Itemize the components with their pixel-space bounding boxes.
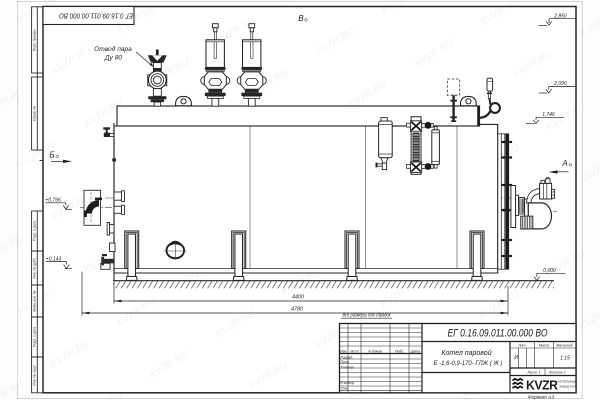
svg-text:4400: 4400 [292,295,304,301]
svg-text:Подп.: Подп. [395,350,404,354]
svg-text:+0,796: +0,796 [45,198,61,204]
svg-text:Инв. № дубл.: Инв. № дубл. [32,257,36,278]
svg-text:Котел паровой: Котел паровой [441,349,491,357]
svg-text:Взам. инв. №: Взам. инв. № [32,290,36,311]
svg-text:ЗАВОД РЭП: ЗАВОД РЭП [559,384,576,388]
svg-text:KVZR: KVZR [526,377,558,392]
svg-text:1:15: 1:15 [560,356,570,362]
svg-text:В: В [298,14,304,23]
svg-text:Изм.: Изм. [340,350,347,354]
svg-text:Отвод пара: Отвод пара [94,45,132,53]
svg-text:Утв.: Утв. [341,387,349,391]
svg-text:Подп. и дата: Подп. и дата [32,221,36,241]
svg-text:Б: Б [49,151,54,160]
svg-text:Подп. и дата: Подп. и дата [32,327,36,347]
svg-text:Все размеры для справок: Все размеры для справок [343,313,391,319]
svg-text:2,090: 2,090 [553,81,567,87]
svg-text:Пров.: Пров. [341,360,350,364]
svg-text:Н.контр.: Н.контр. [341,381,356,385]
svg-text:Е -1,6-0,9-170- ГЛЖ ( Ж ): Е -1,6-0,9-170- ГЛЖ ( Ж ) [434,360,503,367]
svg-text:И: И [514,355,518,361]
svg-text:ЕГ 0.16.09.011.00.000 ВО: ЕГ 0.16.09.011.00.000 ВО [448,327,548,339]
svg-text:КОТЕЛЬНЫЙ: КОТЕЛЬНЫЙ [558,380,577,384]
svg-text:ЕГ 0.16.09.011.00.000 ВО: ЕГ 0.16.09.011.00.000 ВО [59,12,133,21]
svg-text:Листов 2: Листов 2 [548,371,567,375]
svg-text:А: А [561,159,567,168]
svg-text:+0,143: +0,143 [46,256,62,262]
svg-text:1,746: 1,746 [542,112,555,118]
svg-text:Т.контр.: Т.контр. [341,365,355,369]
svg-text:2,850: 2,850 [553,14,567,20]
svg-text:Масштаб: Масштаб [556,343,573,347]
svg-text:Перв. примен.: Перв. примен. [32,29,36,52]
svg-text:Ду 80: Ду 80 [104,55,123,62]
svg-text:Разраб.: Разраб. [341,355,354,359]
svg-text:N докум.: N докум. [368,350,382,354]
svg-text:Масса: Масса [539,343,549,347]
svg-text:Лист: Лист [349,350,359,354]
svg-text:0,000: 0,000 [543,268,556,274]
svg-text:Формат А3: Формат А3 [528,394,555,400]
svg-text:Справ. №: Справ. № [32,105,36,121]
svg-text:Лист 1: Лист 1 [527,371,541,375]
svg-text:4780: 4780 [291,307,303,313]
svg-text:Инв. № подл.: Инв. № подл. [32,364,36,385]
svg-text:Лит.: Лит. [517,343,526,347]
svg-text:Дата: Дата [410,350,420,354]
